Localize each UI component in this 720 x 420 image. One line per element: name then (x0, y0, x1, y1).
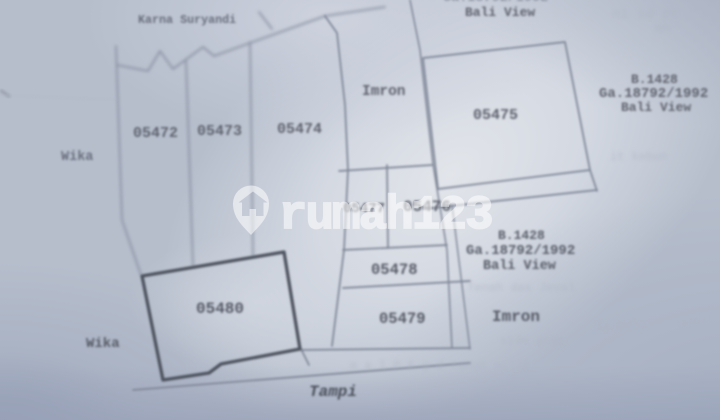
svg-text:sahi: sahi (680, 315, 709, 329)
svg-text:Karna Suryandi: Karna Suryandi (138, 13, 236, 27)
svg-text:side atap: side atap (500, 334, 565, 348)
svg-text:Imron: Imron (362, 84, 406, 100)
svg-text:05479: 05479 (379, 310, 426, 328)
svg-text:B.1428: B.1428 (631, 72, 678, 87)
svg-text:la beku: la beku (595, 320, 645, 334)
svg-text:Tampi: Tampi (309, 383, 357, 401)
svg-text:05473: 05473 (197, 123, 242, 140)
svg-text:Ga.18792/1992: Ga.18792/1992 (466, 243, 575, 259)
svg-text:it kebun: it kebun (610, 150, 668, 164)
svg-text:B.1428: B.1428 (498, 228, 545, 243)
svg-text:Wika: Wika (61, 150, 93, 165)
svg-text:Imron: Imron (492, 308, 540, 326)
svg-text:Bali View: Bali View (483, 259, 557, 274)
svg-text:05475: 05475 (473, 107, 518, 124)
svg-text:mh: mh (655, 21, 671, 36)
svg-text:Wika: Wika (86, 336, 120, 352)
svg-text:Bali View: Bali View (465, 5, 535, 20)
svg-text:05478: 05478 (371, 261, 418, 279)
svg-text:05472: 05472 (133, 125, 178, 142)
svg-text:Bali View: Bali View (621, 100, 691, 115)
svg-text:05480: 05480 (196, 300, 244, 318)
svg-text:Tenah das Jeval: Tenah das Jeval (467, 281, 575, 295)
svg-text:rumah123: rumah123 (279, 190, 492, 243)
svg-text:05474: 05474 (277, 121, 322, 138)
svg-text:m a l P E g d tanah milik: m a l P E g d tanah milik (350, 359, 530, 373)
